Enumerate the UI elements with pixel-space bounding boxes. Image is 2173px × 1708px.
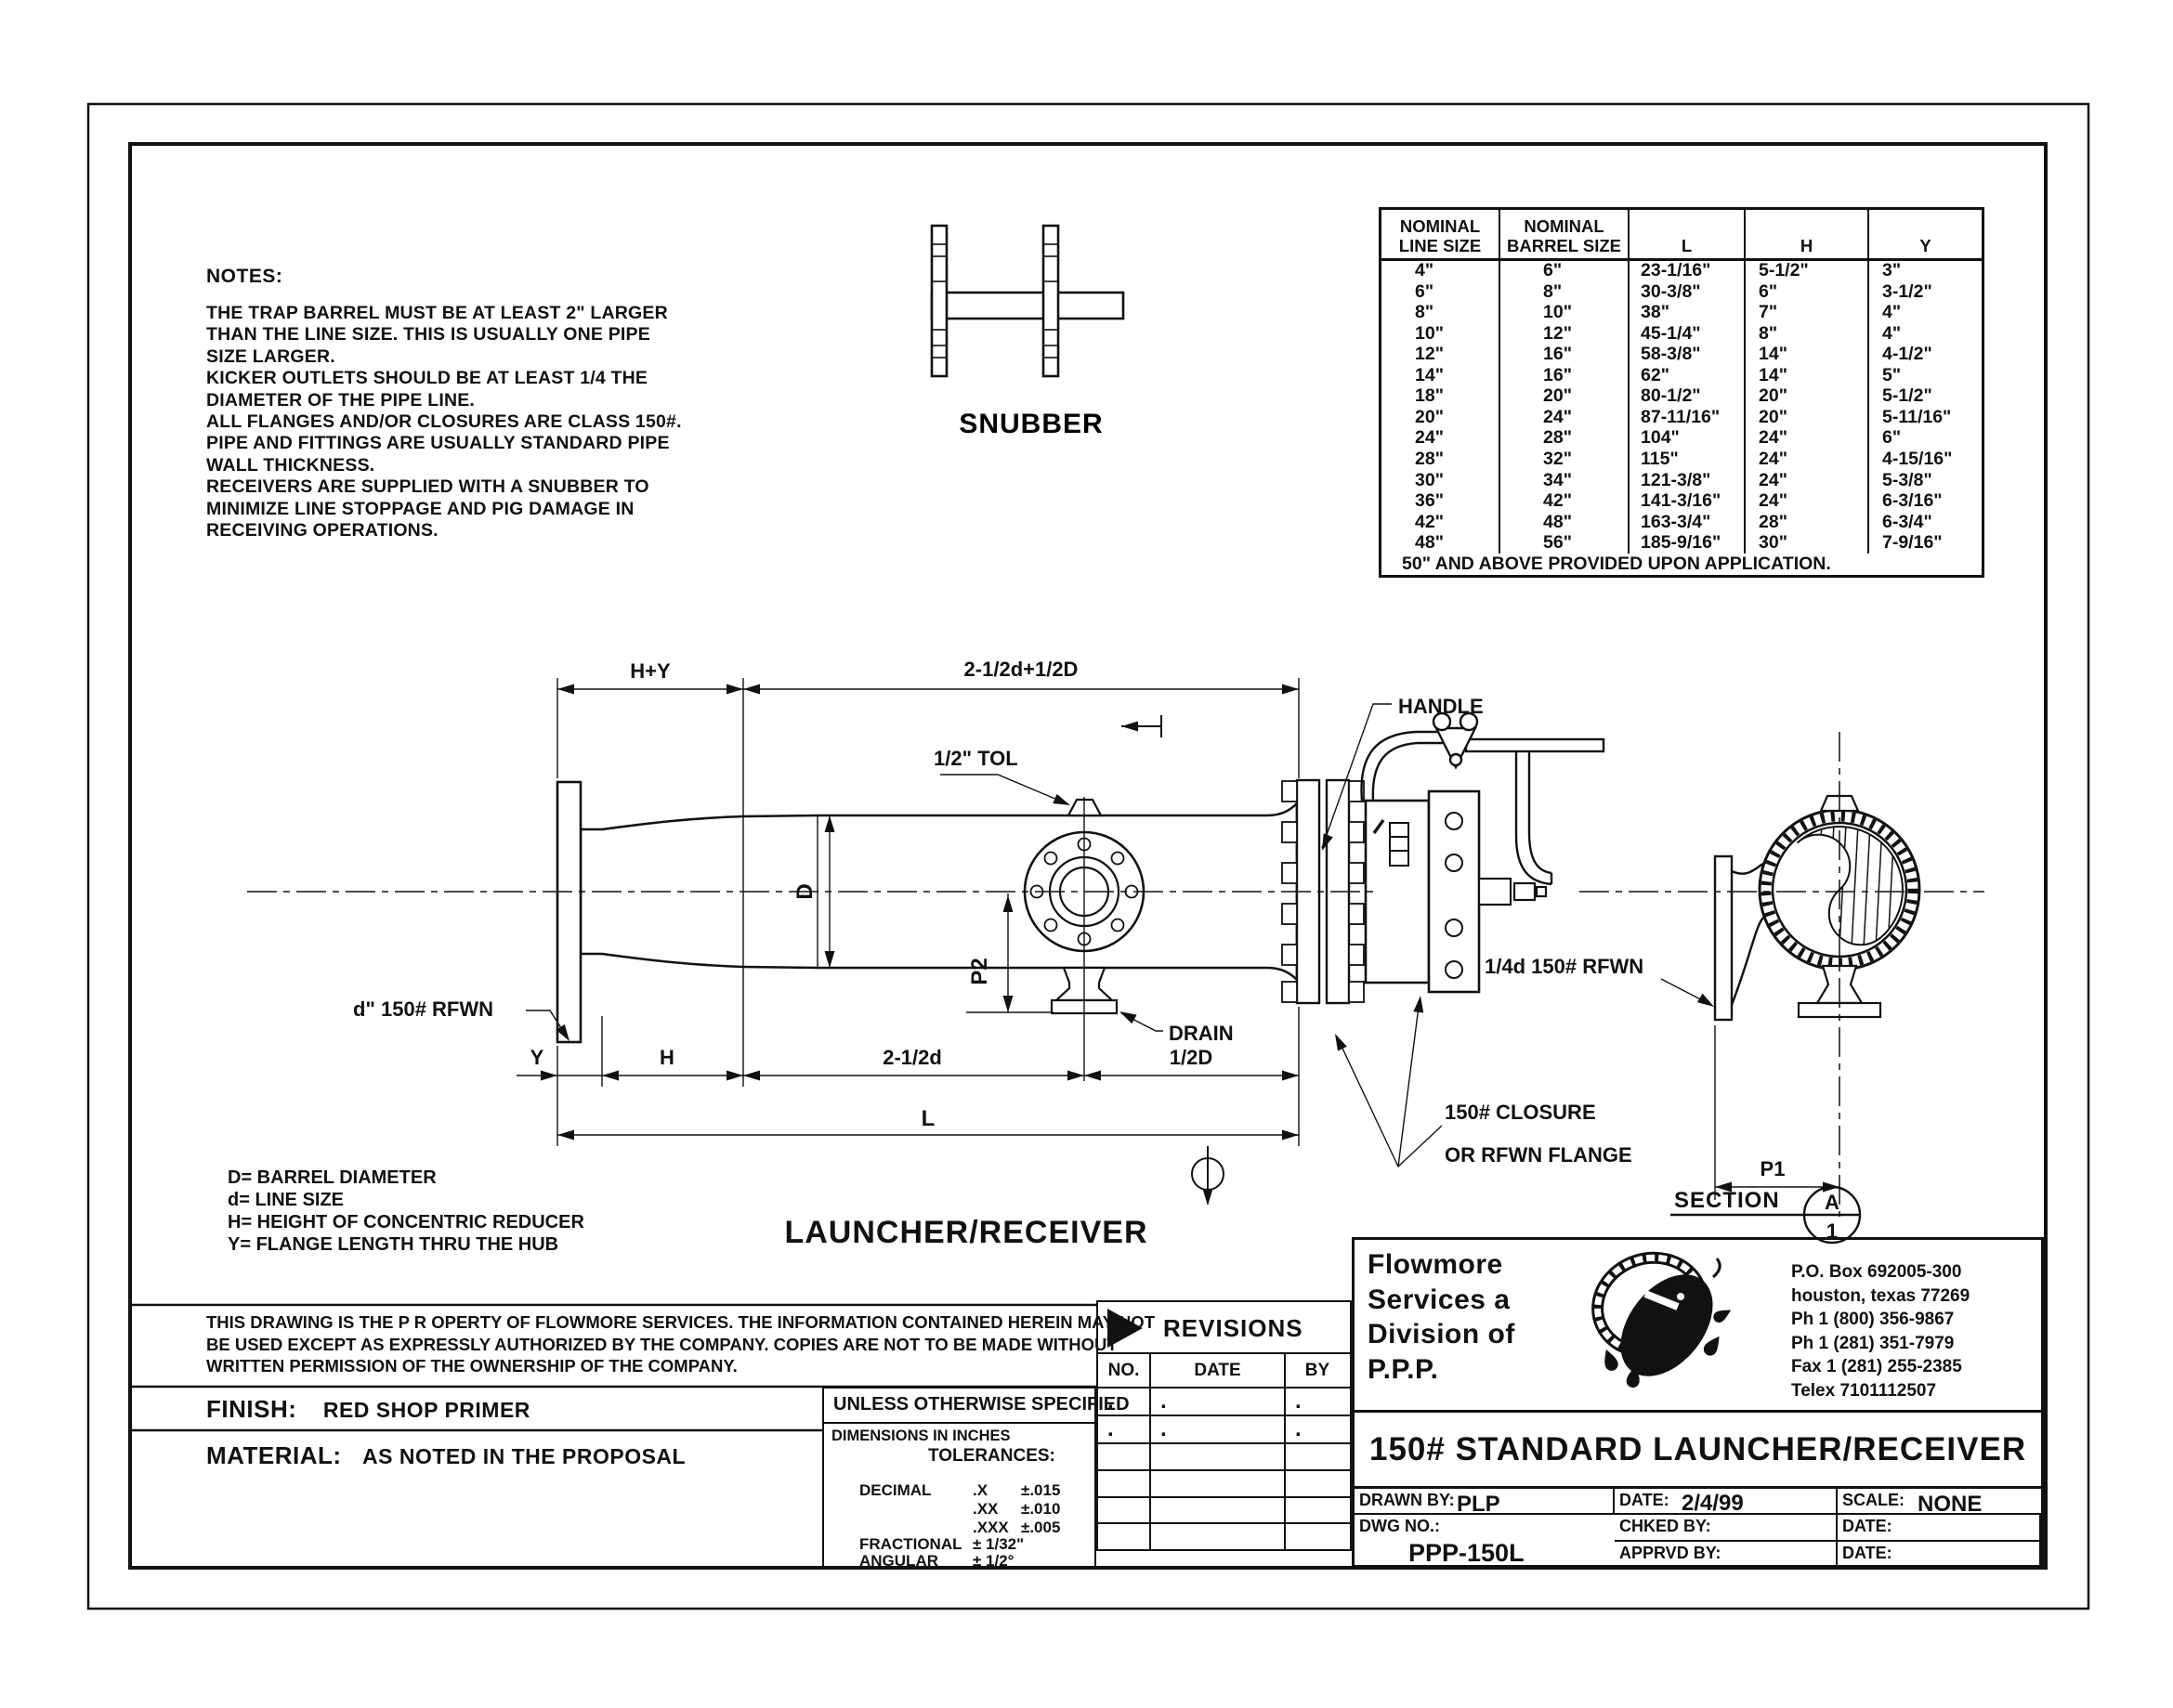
tolerance-dec-val: ±.005 <box>1021 1519 1060 1537</box>
revision-row <box>1098 1524 1350 1549</box>
size-table-cell: 38" <box>1628 303 1744 324</box>
size-table-cell: 87-11/16" <box>1628 407 1744 428</box>
size-table-cell: 6" <box>1867 428 1982 450</box>
revision-cell <box>1149 1524 1284 1549</box>
snubber-flange-right <box>1043 226 1058 376</box>
size-table-cell: 36" <box>1381 491 1499 513</box>
size-table-footer: 50" AND ABOVE PROVIDED UPON APPLICATION. <box>1381 554 1982 575</box>
notes-block: NOTES: THE TRAP BARREL MUST BE AT LEAST … <box>206 266 682 541</box>
size-table-cell: 6" <box>1499 261 1628 282</box>
revision-cell: . <box>1098 1389 1149 1415</box>
company-name-line: Division of <box>1368 1317 1515 1352</box>
size-table-cell: 48" <box>1381 533 1499 554</box>
size-table-cell: 12" <box>1499 323 1628 345</box>
size-table-header: NOMINAL LINE SIZE NOMINAL BARREL SIZE L … <box>1381 210 1982 261</box>
header-line: L <box>1682 236 1692 255</box>
size-table-cell: 4" <box>1381 261 1499 282</box>
revision-cell <box>1098 1498 1149 1523</box>
dim-label-h: H <box>660 1046 674 1069</box>
material-row: MATERIAL: AS NOTED IN THE PROPOSAL <box>206 1441 686 1470</box>
size-table-cell: 141-3/16" <box>1628 491 1744 513</box>
title-block: FlowmoreServices aDivision ofP.P.P. P.O.… <box>1352 1237 2044 1568</box>
size-table-header-cell: H <box>1744 210 1867 258</box>
header-line: Y <box>1919 236 1931 255</box>
size-table-cell: 42" <box>1499 491 1628 513</box>
size-table-row: 8"10"38"7"4" <box>1381 303 1982 324</box>
size-table-cell: 4-1/2" <box>1867 345 1982 366</box>
note-line: WALL THICKNESS. <box>206 455 682 476</box>
revisions-block: REVISIONS NO. DATE BY ...... <box>1096 1300 1352 1551</box>
closure-latch <box>1479 879 1546 905</box>
drawing-sheet: SNUBBER <box>0 0 2173 1708</box>
size-table-cell: 20" <box>1744 407 1867 428</box>
size-table-header-cell: NOMINAL BARREL SIZE <box>1499 210 1628 258</box>
revision-row <box>1098 1498 1350 1525</box>
note-line: PIPE AND FITTINGS ARE USUALLY STANDARD P… <box>206 433 682 454</box>
revisions-col-date: DATE <box>1149 1354 1284 1387</box>
tolerance-dec-val: ±.010 <box>1021 1500 1060 1519</box>
size-table-cell: 45-1/4" <box>1628 323 1744 345</box>
size-table-cell: 28" <box>1381 450 1499 471</box>
material-label: MATERIAL: <box>206 1441 342 1469</box>
property-note-line: BE USED EXCEPT AS EXPRESSLY AUTHORIZED B… <box>206 1334 1155 1356</box>
revision-cell <box>1098 1471 1149 1496</box>
revision-cell <box>1149 1498 1284 1523</box>
size-table: NOMINAL LINE SIZE NOMINAL BARREL SIZE L … <box>1379 207 1984 578</box>
field-date2: DATE: <box>1838 1515 2041 1541</box>
size-table-cell: 24" <box>1744 470 1867 491</box>
dim-label-h-plus-y: H+Y <box>630 659 671 683</box>
size-table-row: 20"24"87-11/16"20"5-11/16" <box>1381 407 1982 428</box>
size-table-row: 24"28"104"24"6" <box>1381 428 1982 450</box>
tolerance-heading: TOLERANCES: <box>928 1446 1055 1467</box>
tolerance-dec-key: .X <box>973 1481 988 1500</box>
revision-cell: . <box>1284 1416 1349 1442</box>
size-table-cell: 16" <box>1499 365 1628 386</box>
size-table-cell: 23-1/16" <box>1628 261 1744 282</box>
finish-value: RED SHOP PRIMER <box>323 1398 530 1422</box>
field-label: APPRVD BY: <box>1619 1544 1721 1563</box>
size-table-cell: 5-1/2" <box>1744 261 1867 282</box>
size-table-cell: 80-1/2" <box>1628 386 1744 408</box>
tolerance-dec-key: .XXX <box>973 1519 1009 1537</box>
legend-block: D= BARREL DIAMETERd= LINE SIZEH= HEIGHT … <box>228 1167 584 1256</box>
field-dwg-no: DWG NO.: PPP-150L <box>1355 1515 1615 1568</box>
revision-cell <box>1284 1498 1349 1523</box>
size-table-cell: 5-11/16" <box>1867 407 1982 428</box>
field-value: 2/4/99 <box>1682 1491 1744 1517</box>
launcher-body <box>557 782 1297 1042</box>
legend-line: H= HEIGHT OF CONCENTRIC REDUCER <box>228 1211 584 1233</box>
revisions-col-by: BY <box>1284 1354 1349 1387</box>
snubber-flange-left <box>932 226 947 376</box>
revisions-title: REVISIONS <box>1163 1314 1303 1343</box>
header-line: H <box>1800 236 1813 255</box>
size-table-row: 12"16"58-3/8"14"4-1/2" <box>1381 345 1982 366</box>
field-scale: SCALE: NONE <box>1838 1489 2041 1515</box>
address-line: Telex 7101112507 <box>1791 1379 1970 1403</box>
revisions-columns: NO. DATE BY <box>1098 1354 1350 1389</box>
field-label: DATE: <box>1842 1517 1892 1536</box>
field-value: PLP <box>1457 1492 1500 1518</box>
field-value: NONE <box>1918 1492 1982 1518</box>
size-table-row: 36"42"141-3/16"24"6-3/16" <box>1381 491 1982 513</box>
handle-label: HANDLE <box>1398 695 1484 718</box>
size-table-cell: 5-1/2" <box>1867 386 1982 408</box>
size-table-row: 10"12"45-1/4"8"4" <box>1381 323 1982 345</box>
size-table-cell: 3-1/2" <box>1867 281 1982 303</box>
legend-line: d= LINE SIZE <box>228 1189 584 1211</box>
field-drawn-by: DRAWN BY: PLP <box>1355 1489 1615 1515</box>
revision-triangle-icon <box>1107 1309 1143 1348</box>
revision-cell: . <box>1284 1389 1349 1415</box>
size-table-row: 28"32"115"24"4-15/16" <box>1381 450 1982 471</box>
size-table-cell: 58-3/8" <box>1628 345 1744 366</box>
note-line: DIAMETER OF THE PIPE LINE. <box>206 390 682 411</box>
size-table-cell: 115" <box>1628 450 1744 471</box>
size-table-row: 14"16"62"14"5" <box>1381 365 1982 386</box>
view-title: LAUNCHER/RECEIVER <box>784 1215 1147 1250</box>
revision-cell: . <box>1149 1389 1284 1415</box>
size-table-cell: 56" <box>1499 533 1628 554</box>
dim-label-12d: 1/2D <box>1170 1046 1212 1069</box>
line-rfwn-label: d" 150# RFWN <box>353 997 493 1021</box>
size-table-cell: 20" <box>1499 386 1628 408</box>
field-label: SCALE: <box>1842 1491 1905 1510</box>
snubber-detail <box>932 226 1123 376</box>
size-table-cell: 32" <box>1499 450 1628 471</box>
dim-label-barrel-length: 2-1/2d+1/2D <box>964 658 1079 681</box>
size-table-cell: 18" <box>1381 386 1499 408</box>
inlet-flange <box>557 782 581 1042</box>
header-line: NOMINAL <box>1400 216 1480 236</box>
header-line: LINE SIZE <box>1399 236 1481 255</box>
revision-cell <box>1284 1444 1349 1469</box>
size-table-cell: 3" <box>1867 261 1982 282</box>
size-table-cell: 5-3/8" <box>1867 470 1982 491</box>
size-table-cell: 28" <box>1499 428 1628 450</box>
legend-line: Y= FLANGE LENGTH THRU THE HUB <box>228 1233 584 1256</box>
material-value: AS NOTED IN THE PROPOSAL <box>362 1444 686 1468</box>
revision-row <box>1098 1471 1350 1498</box>
closure-label-line2: OR RFWN FLANGE <box>1445 1143 1632 1167</box>
note-line: RECEIVERS ARE SUPPLIED WITH A SNUBBER TO <box>206 476 682 498</box>
field-date3: DATE: <box>1838 1542 2041 1568</box>
snubber-label: SNUBBER <box>959 409 1103 439</box>
note-line: ALL FLANGES AND/OR CLOSURES ARE CLASS 15… <box>206 411 682 433</box>
field-label: CHKED BY: <box>1619 1517 1711 1536</box>
size-table-cell: 48" <box>1499 512 1628 533</box>
address-line: Ph 1 (281) 351-7979 <box>1791 1332 1970 1356</box>
size-table-cell: 42" <box>1381 512 1499 533</box>
field-label: DRAWN BY: <box>1359 1491 1455 1510</box>
size-table-cell: 185-9/16" <box>1628 533 1744 554</box>
finish-label: FINISH: <box>206 1395 296 1423</box>
quarter-rfwn-label: 1/4d 150# RFWN <box>1485 955 1643 978</box>
company-name: FlowmoreServices aDivision ofP.P.P. <box>1368 1247 1515 1387</box>
tolerance-fractional-value: ± 1/32" <box>973 1535 1024 1554</box>
header-line: BARREL SIZE <box>1507 236 1621 255</box>
note-line: RECEIVING OPERATIONS. <box>206 520 682 541</box>
size-table-cell: 24" <box>1744 428 1867 450</box>
tolerance-dec-val: ±.015 <box>1021 1481 1060 1500</box>
notes-heading: NOTES: <box>206 266 682 288</box>
revisions-rows: ...... <box>1098 1389 1350 1549</box>
property-note: THIS DRAWING IS THE P R OPERTY OF FLOWMO… <box>206 1311 1155 1377</box>
section-callout-letter: A <box>1825 1191 1839 1214</box>
size-table-cell: 14" <box>1744 365 1867 386</box>
tolerance-decimal-label: DECIMAL <box>859 1481 931 1500</box>
size-table-cell: 6-3/16" <box>1867 491 1982 513</box>
size-table-cell: 6-3/4" <box>1867 512 1982 533</box>
size-table-cell: 14" <box>1381 365 1499 386</box>
revision-cell <box>1284 1471 1349 1496</box>
tolerance-fractional-label: FRACTIONAL <box>859 1535 962 1554</box>
address-line: Ph 1 (800) 356-9867 <box>1791 1308 1970 1332</box>
field-label: DATE: <box>1842 1544 1892 1563</box>
size-table-cell: 104" <box>1628 428 1744 450</box>
dim-label-25d: 2-1/2d <box>883 1046 942 1069</box>
size-table-row: 6"8"30-3/8"6"3-1/2" <box>1381 281 1982 303</box>
flowmore-pig-logo <box>1557 1244 1776 1402</box>
size-table-cell: 12" <box>1381 345 1499 366</box>
drain-label: DRAIN <box>1169 1022 1234 1045</box>
size-table-header-cell: Y <box>1867 210 1982 258</box>
note-line: MINIMIZE LINE STOPPAGE AND PIG DAMAGE IN <box>206 499 682 520</box>
company-name-line: Services a <box>1368 1283 1515 1318</box>
company-name-line: Flowmore <box>1368 1247 1515 1283</box>
size-table-cell: 121-3/8" <box>1628 470 1744 491</box>
tolerance-angular-value: ± 1/2° <box>973 1552 1014 1571</box>
size-table-cell: 7" <box>1744 303 1867 324</box>
revision-row: ... <box>1098 1389 1350 1416</box>
size-table-row: 30"34"121-3/8"24"5-3/8" <box>1381 470 1982 491</box>
address-line: Fax 1 (281) 255-2385 <box>1791 1355 1970 1379</box>
revision-cell <box>1284 1524 1349 1549</box>
property-note-line: THIS DRAWING IS THE P R OPERTY OF FLOWMO… <box>206 1311 1155 1334</box>
size-table-header-cell: NOMINAL LINE SIZE <box>1381 210 1499 258</box>
size-table-cell: 30-3/8" <box>1628 281 1744 303</box>
notes-lines: THE TRAP BARREL MUST BE AT LEAST 2" LARG… <box>206 303 682 541</box>
size-table-cell: 24" <box>1744 450 1867 471</box>
size-table-cell: 24" <box>1499 407 1628 428</box>
revision-cell: . <box>1098 1416 1149 1442</box>
size-table-row: 42"48"163-3/4"28"6-3/4" <box>1381 512 1982 533</box>
size-table-row: 4"6"23-1/16"5-1/2"3" <box>1381 261 1982 282</box>
size-table-cell: 6" <box>1744 281 1867 303</box>
field-date1: DATE: 2/4/99 <box>1615 1489 1838 1515</box>
title-block-fields: DRAWN BY: PLP DATE: 2/4/99 SCALE: NONE C… <box>1355 1486 2041 1568</box>
tolerance-dims-in: DIMENSIONS IN INCHES <box>831 1428 1011 1445</box>
tol-label: 1/2" TOL <box>934 747 1018 770</box>
revision-row <box>1098 1444 1350 1471</box>
note-line: THE TRAP BARREL MUST BE AT LEAST 2" LARG… <box>206 303 682 324</box>
size-table-cell: 6" <box>1381 281 1499 303</box>
field-label: DATE: <box>1619 1491 1669 1510</box>
section-view <box>1715 796 1929 1020</box>
company-address: P.O. Box 692005-300houston, texas 77269P… <box>1791 1260 1970 1402</box>
size-table-cell: 4" <box>1867 303 1982 324</box>
revision-cell <box>1098 1444 1149 1469</box>
note-line: THAN THE LINE SIZE. THIS IS USUALLY ONE … <box>206 324 682 346</box>
size-table-cell: 5" <box>1867 365 1982 386</box>
size-table-cell: 62" <box>1628 365 1744 386</box>
size-table-cell: 8" <box>1499 281 1628 303</box>
size-table-cell: 24" <box>1381 428 1499 450</box>
size-table-row: 18"20"80-1/2"20"5-1/2" <box>1381 386 1982 408</box>
company-name-line: P.P.P. <box>1368 1352 1515 1388</box>
tolerance-angular-label: ANGULAR <box>859 1552 938 1571</box>
size-table-cell: 163-3/4" <box>1628 512 1744 533</box>
size-table-cell: 16" <box>1499 345 1628 366</box>
size-table-cell: 24" <box>1744 491 1867 513</box>
address-line: P.O. Box 692005-300 <box>1791 1260 1970 1284</box>
size-table-cell: 8" <box>1744 323 1867 345</box>
size-table-cell: 10" <box>1381 323 1499 345</box>
revision-cell <box>1098 1524 1149 1549</box>
size-table-cell: 28" <box>1744 512 1867 533</box>
section-side-nozzle <box>1715 856 1763 1020</box>
revision-row: ... <box>1098 1416 1350 1444</box>
revision-cell <box>1149 1444 1284 1469</box>
size-table-cell: 10" <box>1499 303 1628 324</box>
size-table-cell: 8" <box>1381 303 1499 324</box>
dim-label-y: Y <box>530 1046 544 1069</box>
tolerance-dec-key: .XX <box>973 1500 998 1519</box>
closure-label-line1: 150# CLOSURE <box>1445 1101 1596 1124</box>
property-note-line: WRITTEN PERMISSION OF THE OWNERSHIP OF T… <box>206 1355 1155 1377</box>
size-table-cell: 20" <box>1744 386 1867 408</box>
dim-label-l: L <box>922 1106 936 1131</box>
size-table-cell: 30" <box>1744 533 1867 554</box>
revisions-table: NO. DATE BY ...... <box>1096 1354 1352 1551</box>
field-chked-by: CHKED BY: <box>1615 1515 1838 1541</box>
size-table-body: 4"6"23-1/16"5-1/2"3"6"8"30-3/8"6"3-1/2"8… <box>1381 261 1982 554</box>
finish-row: FINISH: RED SHOP PRIMER <box>206 1395 530 1424</box>
note-line: KICKER OUTLETS SHOULD BE AT LEAST 1/4 TH… <box>206 368 682 389</box>
size-table-header-cell: L <box>1628 210 1744 258</box>
note-line: SIZE LARGER. <box>206 346 682 368</box>
address-line: houston, texas 77269 <box>1791 1284 1970 1309</box>
size-table-cell: 34" <box>1499 470 1628 491</box>
size-table-cell: 20" <box>1381 407 1499 428</box>
legend-line: D= BARREL DIAMETER <box>228 1167 584 1189</box>
header-line: NOMINAL <box>1524 216 1604 236</box>
tolerance-unless: UNLESS OTHERWISE SPECIFIED <box>833 1394 1130 1415</box>
drawing-title: 150# STANDARD LAUNCHER/RECEIVER <box>1355 1410 2041 1486</box>
size-table-cell: 7-9/16" <box>1867 533 1982 554</box>
revision-cell <box>1149 1471 1284 1496</box>
size-table-cell: 14" <box>1744 345 1867 366</box>
size-table-cell: 4" <box>1867 323 1982 345</box>
size-table-row: 48"56"185-9/16"30"7-9/16" <box>1381 533 1982 554</box>
field-label: DWG NO.: <box>1359 1517 1440 1536</box>
revisions-col-no: NO. <box>1098 1354 1149 1387</box>
dim-label-p2: P2 <box>967 958 992 984</box>
section-callout-label: SECTION <box>1674 1188 1780 1213</box>
size-table-cell: 4-15/16" <box>1867 450 1982 471</box>
dim-label-p1: P1 <box>1761 1157 1786 1180</box>
revisions-header: REVISIONS <box>1096 1300 1352 1354</box>
size-table-cell: 30" <box>1381 470 1499 491</box>
field-apprvd-by: APPRVD BY: <box>1615 1542 1838 1568</box>
field-value: PPP-150L <box>1408 1539 1525 1568</box>
revision-cell: . <box>1149 1416 1284 1442</box>
tolerance-block: UNLESS OTHERWISE SPECIFIED DIMENSIONS IN… <box>822 1387 1096 1568</box>
